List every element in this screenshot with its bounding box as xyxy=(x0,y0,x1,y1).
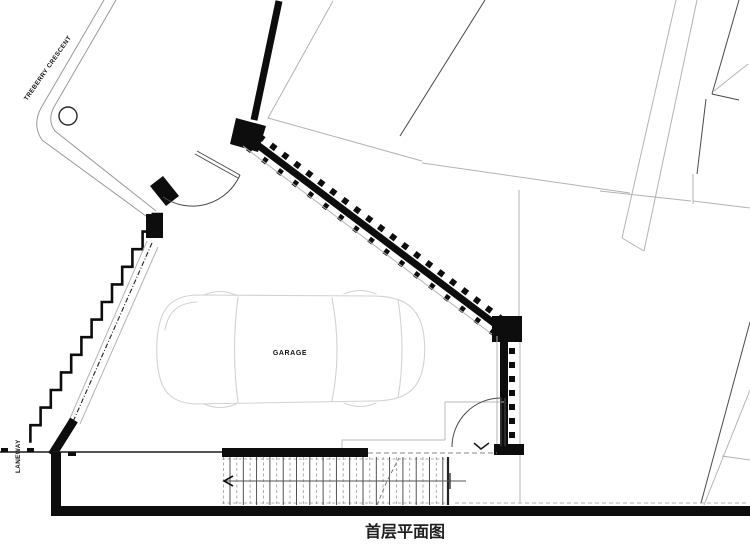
street-name-label: TREBERRY CRESCENT xyxy=(23,35,73,102)
boundary-step-wall xyxy=(30,214,163,443)
laneway-label: LANEWAY xyxy=(15,439,22,473)
plan-title: 首层平面图 xyxy=(365,522,445,541)
car-outline xyxy=(157,291,425,408)
boundary-dashed-line xyxy=(52,241,158,455)
laneway-walls xyxy=(0,448,750,516)
door-chevron-icon xyxy=(474,443,489,449)
neighbor-outlines xyxy=(268,0,750,505)
manhole-circle xyxy=(59,107,77,125)
room-label-garage: GARAGE xyxy=(273,350,307,357)
stair-run xyxy=(222,457,466,505)
floor-plan-page: TREBERRY CRESCENT LANEWAY GARAGE 首层平面图 xyxy=(0,0,750,544)
garage-walls xyxy=(150,1,524,455)
floor-plan-canvas: TREBERRY CRESCENT LANEWAY GARAGE 首层平面图 xyxy=(0,0,750,544)
street-kerb-lines xyxy=(37,0,156,219)
